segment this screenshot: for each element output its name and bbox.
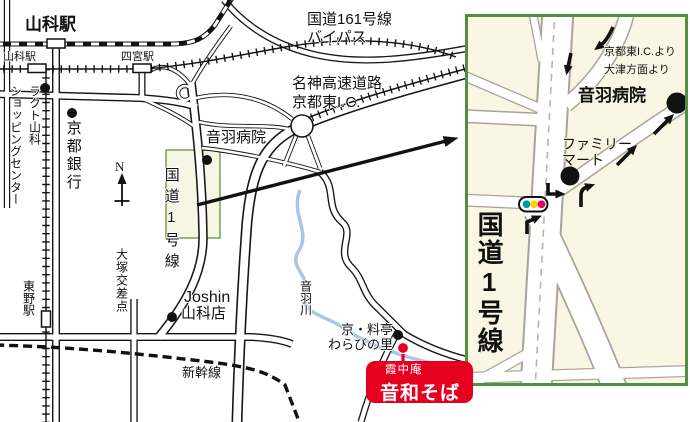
label-route1-main: 国道1号線 (162, 167, 179, 274)
inset-label-familymart-line1: ファミリー (562, 137, 632, 153)
kyoto-higashi-ic-circle (291, 115, 313, 137)
destination-name-line1: 霞中庵 (385, 361, 473, 377)
inset-familymart-dot (561, 167, 580, 186)
label-shinomiya-station: 四宮駅 (121, 51, 154, 63)
traffic-light-icon (519, 197, 548, 212)
north-arrow-icon (115, 173, 130, 206)
label-otowa-hospital-main: 音羽病院 (206, 130, 266, 147)
label-rakuto-line2: ショッピングセンター (8, 85, 21, 205)
otowa-hospital-dot (202, 155, 212, 165)
inset-map: 京都東I.C.より 大津方面より 音羽病院 ファミリー マート 国道1号線 (465, 14, 688, 386)
inset-label-from-ic: 京都東I.C.より (604, 46, 676, 58)
label-meishin-line2: 京都東I.C. (292, 95, 360, 112)
yamashina-keihan-station-rect (28, 64, 46, 73)
label-kyoto-bank: 京都銀行 (64, 120, 81, 192)
label-yamashina-station-keihan: 山科駅 (3, 51, 36, 63)
access-map: 山科駅 山科駅 四宮駅 ラクト山科 ショッピングセンター 京都銀行 国道1号線 … (0, 0, 690, 422)
label-otowa-river: 音羽川 (298, 280, 311, 316)
warabi-dot (393, 330, 403, 340)
yamashina-jr-station-rect (47, 39, 65, 48)
inset-label-familymart-line2: マート (562, 153, 604, 169)
destination-callout: 霞中庵 音和そば (366, 361, 473, 403)
label-otsuka-crossing: 大塚交差点 (114, 248, 127, 313)
inset-label-otowa-hospital: 音羽病院 (578, 86, 646, 105)
label-route161-line1: 国道161号線 (307, 12, 392, 29)
label-yamashina-station-jr: 山科駅 (25, 15, 76, 34)
shinomiya-station-rect (133, 64, 151, 73)
inset-label-from-otsu: 大津方面より (604, 64, 670, 76)
destination-name-line2: 音和そば (380, 378, 473, 405)
destination-dot (398, 343, 409, 354)
label-warabi-line1: 京・料亭 (305, 323, 393, 338)
inset-label-route1: 国道1号線 (474, 211, 503, 355)
joshin-dot (167, 312, 177, 322)
higashino-station-rect (42, 311, 51, 327)
label-route161-line2: バイパス (307, 30, 367, 47)
label-joshin-line2: 山科店 (181, 306, 226, 323)
label-shinkansen: 新幹線 (182, 366, 221, 381)
rakuto-dot (40, 83, 50, 93)
label-compass-n: N (115, 160, 124, 175)
kyoto-bank-dot (67, 108, 77, 118)
label-meishin-line1: 名神高速道路 (292, 76, 382, 93)
road-fills (0, 0, 472, 422)
label-warabi-line2: わらびの里 (305, 338, 393, 353)
label-rakuto-line1: ラクト山科 (27, 85, 40, 145)
label-higashino-station: 東野駅 (21, 280, 34, 316)
